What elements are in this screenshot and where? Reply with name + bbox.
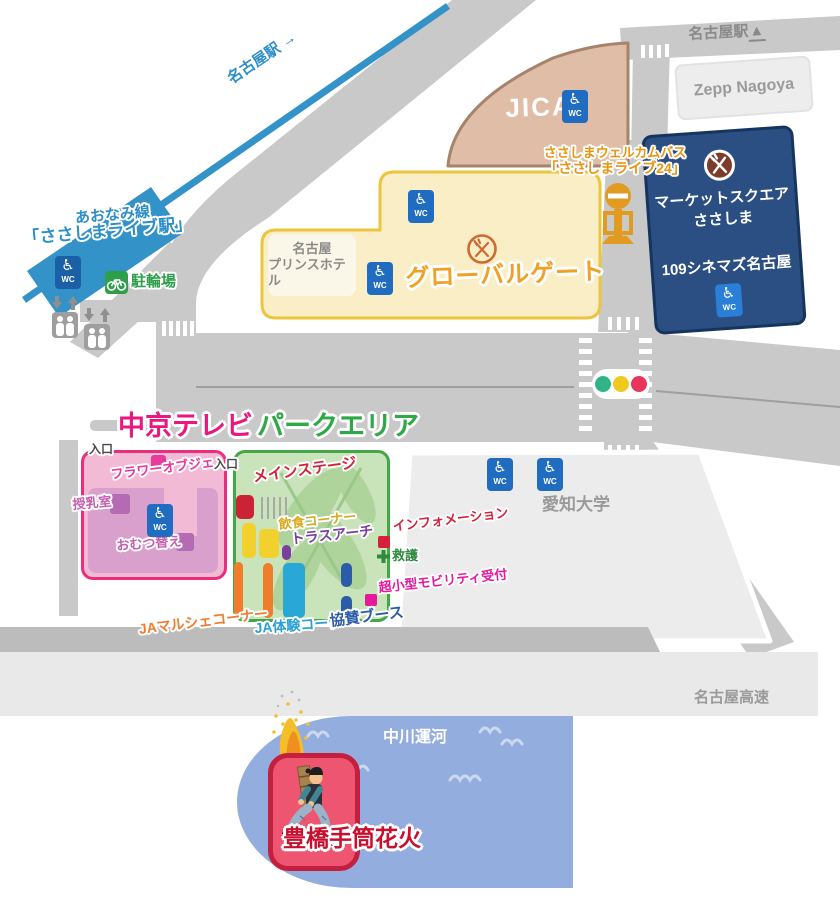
signal-green-light [595, 376, 611, 392]
first-aid-label: 救護 [392, 549, 418, 563]
wheelchair-icon: ♿ [543, 458, 556, 478]
wc-icon: ♿ WC [55, 256, 81, 289]
wc-icon: ♿ WC [562, 90, 588, 123]
tezutsu-label: 豊橋手筒花火 [283, 826, 421, 851]
wheelchair-icon: ♿ [373, 262, 386, 282]
wc-icon: ♿ WC [147, 504, 173, 537]
entrance-label-park: 入口 [214, 458, 238, 471]
sasashima-event-map: JICA ♿ WC Zepp Nagoya マーケットスクエア ささしま 109… [0, 0, 840, 912]
expressway-label: 名古屋高速 [694, 690, 769, 707]
wheelchair-icon: ♿ [61, 256, 74, 276]
canal-label: 中川運河 [383, 729, 447, 747]
signal-yellow-light [613, 376, 629, 392]
wc-icon: ♿ WC [537, 458, 563, 491]
wheelchair-icon: ♿ [568, 90, 581, 110]
signal-red-light [631, 376, 647, 392]
chukyo-tv-title: 中京テレビ [118, 412, 253, 442]
wheelchair-icon: ♿ [153, 504, 166, 524]
wc-icon: ♿ WC [487, 458, 513, 491]
wc-icon: ♿ WC [408, 190, 434, 223]
park-area-title: パークエリア [257, 412, 419, 442]
wheelchair-icon: ♿ [493, 458, 506, 478]
wheelchair-icon: ♿ [414, 190, 427, 210]
wc-icon: ♿ WC [367, 262, 393, 295]
traffic-signal [592, 369, 650, 399]
entrance-label-chukyo: 入口 [89, 443, 113, 456]
